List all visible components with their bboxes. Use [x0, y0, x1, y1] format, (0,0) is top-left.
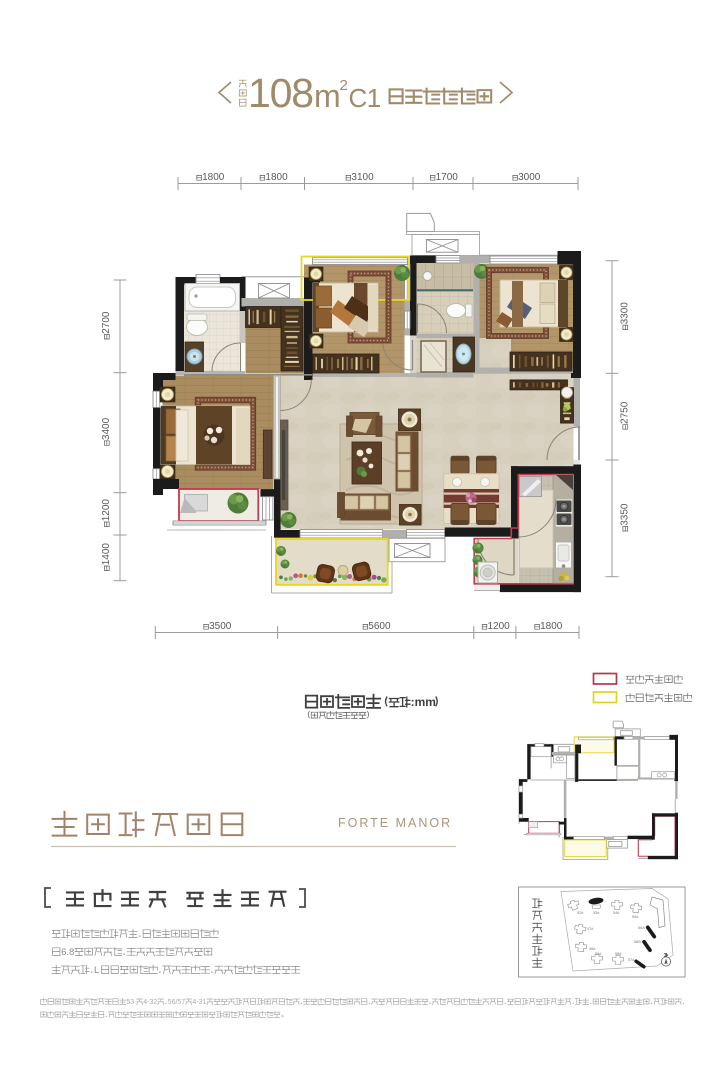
- svg-text::mm: :mm: [411, 695, 436, 709]
- svg-text:52#: 52#: [577, 911, 584, 915]
- svg-text:5600: 5600: [368, 621, 391, 632]
- svg-text:46#: 46#: [589, 947, 596, 951]
- svg-text:m: m: [314, 78, 341, 114]
- svg-text:4-31: 4-31: [192, 999, 206, 1006]
- svg-text:3100: 3100: [351, 172, 374, 183]
- svg-text:1400: 1400: [101, 543, 112, 566]
- svg-text:1800: 1800: [540, 621, 563, 632]
- svg-text:1200: 1200: [488, 621, 511, 632]
- svg-text:56/57: 56/57: [168, 999, 186, 1006]
- svg-text:57#: 57#: [628, 958, 635, 962]
- svg-text:4-32: 4-32: [143, 999, 157, 1006]
- svg-text:59#: 59#: [595, 952, 602, 956]
- svg-text:3400: 3400: [101, 417, 112, 440]
- svg-text:53: 53: [126, 999, 134, 1006]
- svg-text:56B: 56B: [634, 940, 641, 944]
- svg-text:3300: 3300: [620, 302, 631, 325]
- svg-text:FORTE MANOR: FORTE MANOR: [338, 816, 452, 830]
- svg-text:6.8: 6.8: [61, 947, 74, 958]
- svg-text:53#: 53#: [593, 911, 600, 915]
- svg-text:58#: 58#: [615, 952, 622, 956]
- svg-text:54#: 54#: [613, 911, 620, 915]
- svg-text:3350: 3350: [620, 503, 631, 526]
- svg-text:2750: 2750: [620, 401, 631, 424]
- svg-text:1200: 1200: [101, 499, 112, 522]
- svg-text:3000: 3000: [518, 172, 541, 183]
- svg-text:1800: 1800: [202, 172, 225, 183]
- svg-text:1800: 1800: [265, 172, 288, 183]
- svg-text:56A: 56A: [638, 926, 645, 930]
- svg-text:2: 2: [340, 77, 348, 94]
- svg-text:55#: 55#: [632, 915, 639, 919]
- svg-text:C1: C1: [349, 83, 381, 113]
- svg-text:L: L: [94, 965, 99, 976]
- svg-text:2700: 2700: [101, 311, 112, 334]
- svg-text:1700: 1700: [436, 172, 459, 183]
- svg-text:47#: 47#: [587, 927, 594, 931]
- svg-text:108: 108: [248, 70, 313, 116]
- svg-text:3500: 3500: [209, 621, 232, 632]
